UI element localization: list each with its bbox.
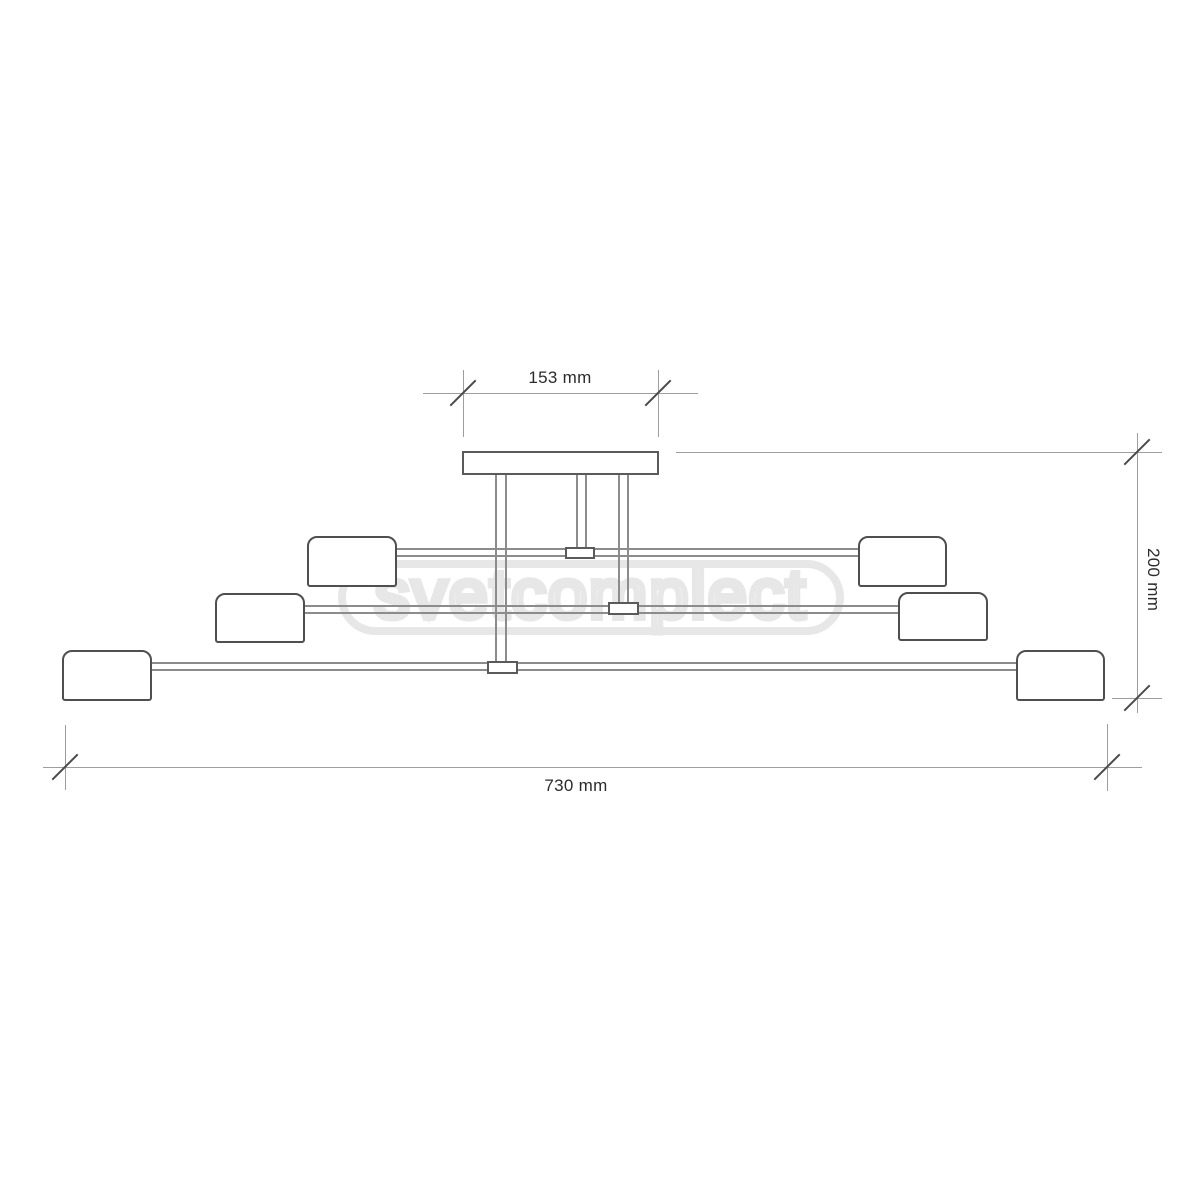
dim-height-line: [1137, 433, 1138, 713]
arm-bottom: [152, 662, 1016, 671]
dim-canopy-width-ext-left: [463, 370, 464, 437]
lamp-head-top-left: [307, 536, 397, 587]
downrod-right-medium: [618, 473, 629, 605]
lamp-head-top-right: [858, 536, 947, 587]
lamp-head-bottom-left: [62, 650, 152, 701]
dim-label-height: 200 mm: [1143, 548, 1163, 610]
watermark-text: svetcomplect: [375, 555, 807, 633]
dim-height-ext-top: [676, 452, 1162, 453]
watermark-capsule: svetcomplect: [338, 560, 844, 635]
canopy: [462, 451, 659, 475]
dim-total-width-ext-right: [1107, 724, 1108, 791]
technical-drawing-canvas: svetcomplect 153 mm 200 mm 730 mm: [0, 0, 1200, 1200]
dim-total-width-ext-left: [65, 725, 66, 790]
lamp-head-middle-left: [215, 593, 305, 643]
connector-arm-middle: [608, 602, 639, 615]
dim-total-width-line: [43, 767, 1142, 768]
lamp-head-middle-right: [898, 592, 988, 641]
connector-arm-bottom: [487, 661, 518, 674]
arm-middle: [305, 605, 898, 614]
dim-canopy-width-ext-right: [658, 370, 659, 437]
dim-label-total-width: 730 mm: [516, 776, 636, 796]
downrod-left-long: [495, 473, 507, 663]
connector-arm-top: [565, 547, 595, 559]
watermark-svg: svetcomplect: [346, 568, 836, 627]
downrod-center-short: [576, 473, 587, 550]
dim-label-canopy-width: 153 mm: [510, 368, 610, 388]
lamp-head-bottom-right: [1016, 650, 1105, 701]
